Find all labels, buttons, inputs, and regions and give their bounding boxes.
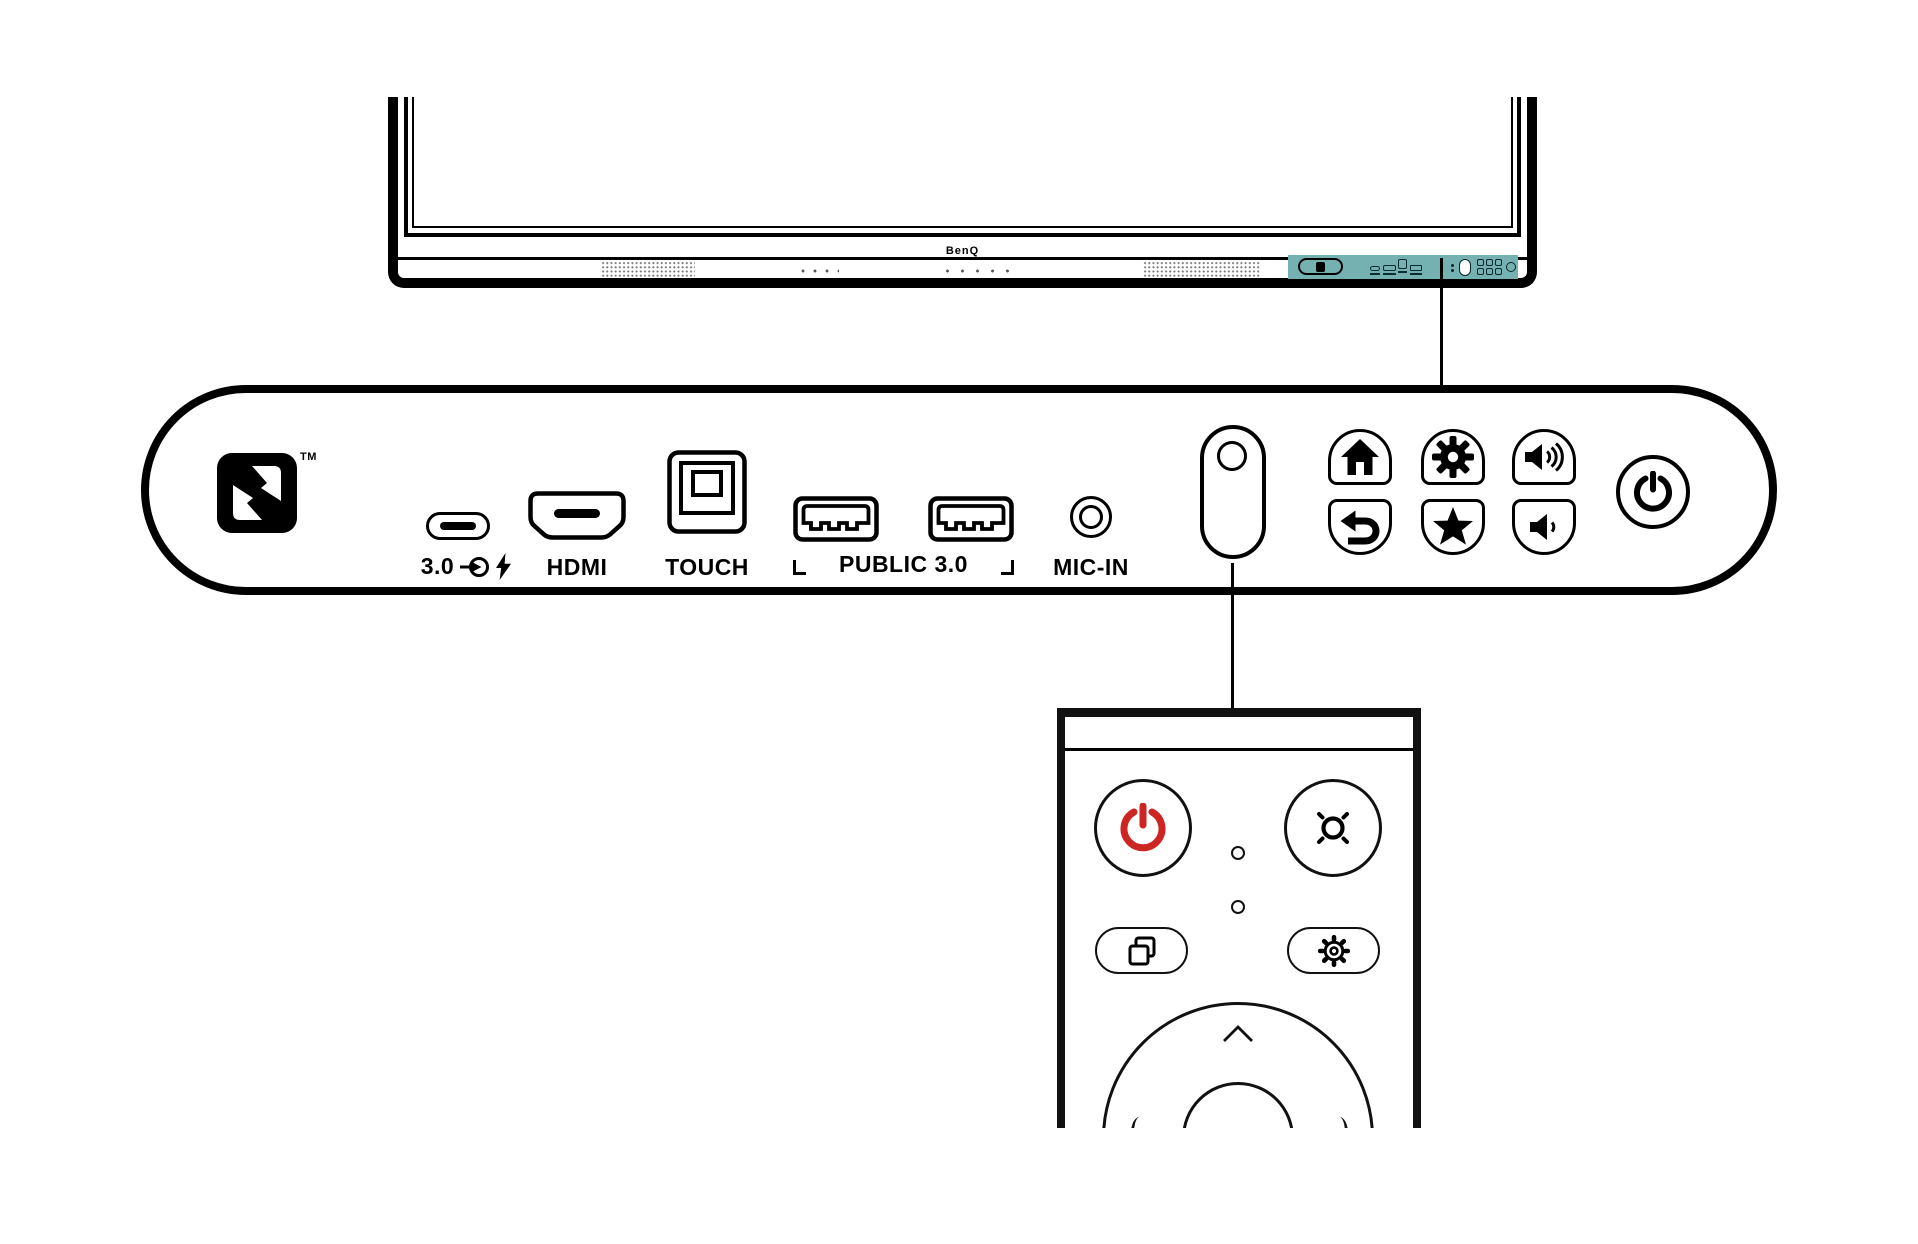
mic-in-jack	[1070, 496, 1112, 538]
mini-button	[1486, 268, 1493, 275]
mic-mini-icon	[1451, 264, 1454, 267]
display-illustration: BenQ	[0, 0, 1918, 300]
ok-button: OK	[1182, 1082, 1294, 1128]
mini-label-mark	[1398, 271, 1407, 273]
back-arrow-icon	[1340, 510, 1380, 545]
nfc-mini-tag	[1298, 258, 1343, 275]
home-icon	[1339, 437, 1381, 477]
mini-label-mark	[1383, 273, 1396, 275]
gear-icon	[1431, 435, 1475, 479]
mini-button	[1495, 259, 1502, 266]
settings-button	[1421, 429, 1485, 485]
mini-button	[1477, 268, 1484, 275]
bracket-left-icon	[793, 560, 806, 575]
mini-label-mark	[1370, 273, 1380, 275]
usb-c-label: 3.0	[401, 553, 531, 580]
indicator-led-1	[1231, 846, 1245, 860]
mini-button	[1486, 259, 1493, 266]
bracket-right-icon	[1001, 560, 1014, 575]
hdmi-label: HDMI	[528, 554, 626, 581]
usb-c-mini-icon	[1370, 266, 1380, 271]
ir-sensor-mini-icon	[1459, 259, 1471, 276]
ir-sensor-led	[1217, 441, 1247, 471]
touch-mini-icon	[1398, 259, 1407, 269]
leader-line-display-to-panel	[1440, 258, 1443, 385]
remote-power-button	[1094, 779, 1192, 877]
usb-mini-icon	[1410, 265, 1422, 271]
usb-c-slot	[440, 522, 476, 530]
speaker-grille-left	[601, 261, 695, 277]
duplicate-windows-icon	[1126, 936, 1158, 966]
volume-down-icon	[1522, 511, 1566, 543]
remote-ir-header	[1065, 717, 1413, 751]
power-mini-icon	[1506, 262, 1516, 272]
public-usb-label: PUBLIC 3.0	[793, 551, 1014, 578]
quick-charge-icon	[496, 553, 511, 580]
speaker-grille-right	[1143, 261, 1261, 277]
usb-in-icon	[460, 554, 490, 580]
mic-in-jack-inner	[1079, 505, 1103, 529]
indicator-led-2	[1231, 900, 1245, 914]
mini-button	[1495, 268, 1502, 275]
remote-body: OK	[1057, 708, 1421, 1128]
power-icon	[1632, 471, 1674, 513]
power-icon-red	[1118, 803, 1168, 853]
mini-button	[1477, 259, 1484, 266]
power-button	[1616, 455, 1690, 529]
usb-a-port-2	[928, 496, 1014, 542]
ok-label: OK	[1185, 1085, 1291, 1128]
public-usb-label-text: PUBLIC 3.0	[839, 551, 968, 578]
volume-up-button	[1512, 429, 1576, 485]
remote-settings-button	[1287, 927, 1380, 974]
usb-c-label-text: 3.0	[421, 553, 454, 580]
display-screen-edge	[412, 97, 1513, 228]
gear-outline-icon	[1317, 934, 1351, 968]
bezel-buttons-dots	[940, 269, 1020, 273]
mic-in-label: MIC-IN	[1041, 554, 1141, 581]
brightness-button	[1284, 779, 1382, 877]
star-icon	[1431, 506, 1475, 548]
volume-down-button	[1512, 499, 1576, 555]
favorite-button	[1421, 499, 1485, 555]
nfc-trademark: TM	[300, 451, 317, 463]
touch-label: TOUCH	[657, 554, 757, 581]
mini-label-mark	[1410, 273, 1422, 275]
home-button	[1328, 429, 1392, 485]
remote-control: OK	[1057, 708, 1421, 1128]
connection-diagram: BenQ	[0, 0, 1918, 1244]
touch-port	[667, 450, 747, 534]
usb-a-port-1	[793, 496, 879, 542]
io-panel: TM 3.0 HDMI TOUCH	[141, 385, 1777, 595]
io-highlight-strip	[1288, 255, 1518, 279]
source-button	[1095, 927, 1188, 974]
volume-up-icon	[1522, 441, 1566, 473]
back-button	[1328, 499, 1392, 555]
mic-mini-icon	[1451, 269, 1454, 272]
nfc-logo	[217, 453, 297, 533]
hdmi-port	[528, 491, 626, 543]
bezel-buttons-dots	[797, 269, 839, 273]
usb-c-port	[426, 512, 490, 540]
brightness-icon	[1310, 805, 1356, 851]
leader-line-panel-to-remote	[1231, 563, 1234, 708]
hdmi-mini-icon	[1383, 265, 1396, 271]
chevron-up-icon	[1222, 1025, 1254, 1043]
